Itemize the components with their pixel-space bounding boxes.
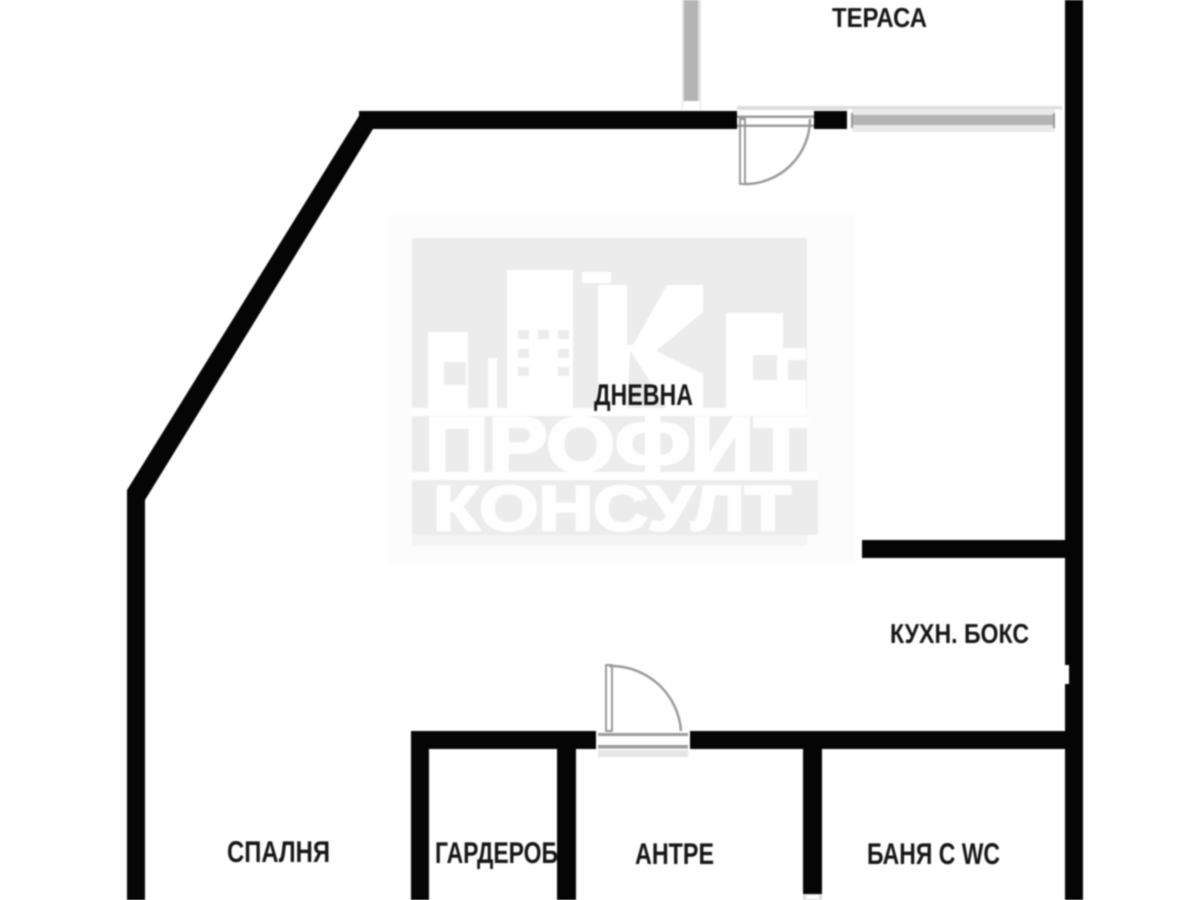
svg-text:АНТРЕ: АНТРЕ	[635, 838, 714, 871]
svg-text:КОНСУЛТ: КОНСУЛТ	[433, 474, 791, 544]
svg-text:ГАРДЕРОБ: ГАРДЕРОБ	[435, 837, 558, 870]
svg-text:ДНЕВНА: ДНЕВНА	[594, 379, 693, 412]
svg-text:БАНЯ С WC: БАНЯ С WC	[867, 838, 1000, 871]
svg-text:КУХН. БОКС: КУХН. БОКС	[890, 618, 1029, 649]
svg-text:ТЕРАСА: ТЕРАСА	[832, 2, 927, 33]
svg-text:СПАЛНЯ: СПАЛНЯ	[227, 836, 330, 869]
